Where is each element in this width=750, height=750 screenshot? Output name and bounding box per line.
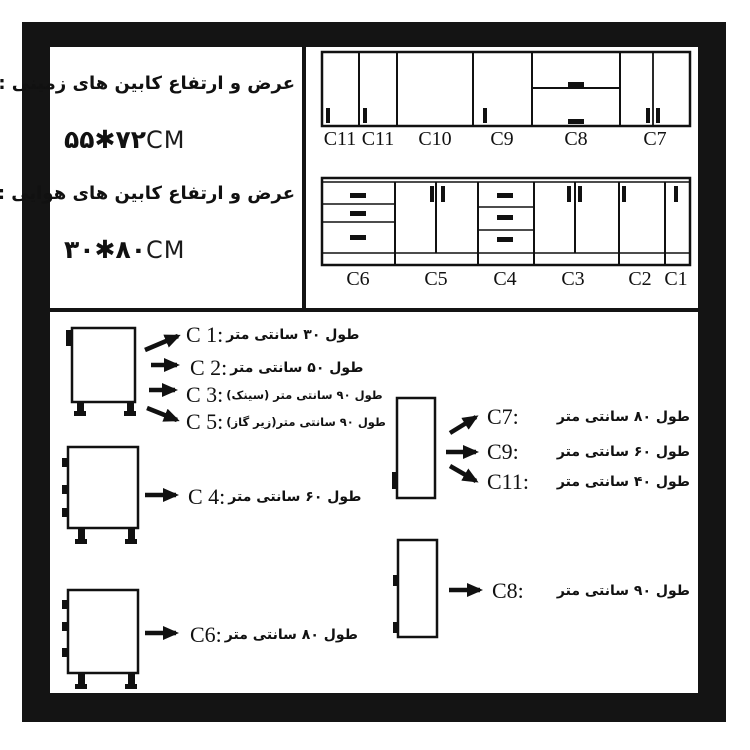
legend-row-c9: C9: طول ۶۰ سانتی متر — [487, 439, 690, 465]
legend-drawing-wall-cabinet-90 — [393, 540, 480, 637]
cabinet-length: طول ۸۰ سانتی متر — [225, 626, 358, 644]
legend-row-c6: C6: طول ۸۰ سانتی متر — [190, 622, 358, 648]
cabinet-code: C 2: — [190, 355, 227, 381]
floor-size-value: ۵۵✱۷۲ — [64, 125, 146, 154]
cabinet-code: C 3: — [186, 382, 223, 408]
cabinet-code: C9: — [487, 439, 519, 465]
floor-size-unit: CM — [146, 126, 185, 154]
cabinet-length: طول ۶۰ سانتی متر — [228, 488, 361, 506]
legend-drawing-single-door-cabinet — [66, 328, 178, 420]
elevation-panel: C11 C11 C10 C9 C8 C7 C6 C5 C4 C3 C2 C1 — [306, 47, 698, 308]
wall-cabinet-label: C11 — [362, 128, 395, 150]
wall-size-unit: CM — [146, 236, 185, 264]
cabinet-code: C11: — [487, 469, 529, 495]
cabinet-length: طول ۴۰ سانتی متر — [557, 473, 690, 491]
wall-cabinets-title: عرض و ارتفاع کابین های هوایی : — [50, 181, 302, 207]
floor-cabinets-title: عرض و ارتفاع کابین های زمینی : — [50, 71, 302, 97]
floor-cabinets-size: ۵۵✱۷۲CM — [64, 125, 185, 155]
wall-cabinets-size: ۳۰✱۸۰CM — [64, 235, 185, 265]
cabinet-code: C 1: — [186, 322, 223, 348]
legend-row-c3: C 3: طول ۹۰ سانتی متر (سینک) — [186, 382, 383, 408]
wall-cabinet-label: C11 — [324, 128, 357, 150]
base-cabinet-label: C3 — [561, 268, 584, 290]
legend-panel: C 1: طول ۳۰ سانتی متر C 2: طول ۵۰ سانتی … — [50, 312, 698, 693]
cabinet-length: طول ۹۰ سانتی متر — [557, 582, 690, 600]
base-cabinet-label: C2 — [628, 268, 651, 290]
cabinet-spec-sheet: عرض و ارتفاع کابین های زمینی : ۵۵✱۷۲CM ع… — [0, 0, 750, 750]
legend-row-c7: C7: طول ۸۰ سانتی متر — [487, 404, 690, 430]
cabinet-code: C 4: — [188, 484, 225, 510]
wall-cabinet-label: C9 — [490, 128, 513, 150]
legend-drawing-wall-cabinet — [392, 398, 476, 498]
legend-row-c2: C 2: طول ۵۰ سانتی متر — [190, 355, 363, 381]
cabinet-code: C6: — [190, 622, 222, 648]
cabinet-length: طول ۶۰ سانتی متر — [557, 443, 690, 461]
cabinet-length: طول ۳۰ سانتی متر — [226, 326, 359, 344]
legend-drawing-drawer-cabinet-80 — [62, 590, 176, 689]
legend-drawing — [50, 312, 698, 693]
base-cabinet-label: C6 — [346, 268, 369, 290]
cabinet-code: C 5: — [186, 409, 223, 435]
cabinet-length: طول ۹۰ سانتی متر(زیر گاز) — [226, 413, 386, 431]
cabinet-length: طول ۹۰ سانتی متر (سینک) — [226, 386, 382, 404]
wall-cabinet-label: C7 — [643, 128, 666, 150]
cabinet-code: C7: — [487, 404, 519, 430]
legend-row-c5: C 5: طول ۹۰ سانتی متر(زیر گاز) — [186, 409, 386, 435]
cabinet-length: طول ۸۰ سانتی متر — [557, 408, 690, 426]
cabinet-code: C8: — [492, 578, 524, 604]
legend-drawing-drawer-cabinet-60 — [62, 447, 176, 544]
wall-cabinet-label: C10 — [418, 128, 451, 150]
legend-row-c11: C11: طول ۴۰ سانتی متر — [487, 469, 690, 495]
legend-row-c1: C 1: طول ۳۰ سانتی متر — [186, 322, 359, 348]
legend-row-c4: C 4: طول ۶۰ سانتی متر — [188, 484, 361, 510]
legend-row-c8: C8: طول ۹۰ سانتی متر — [492, 578, 690, 604]
wall-size-value: ۳۰✱۸۰ — [64, 235, 146, 264]
wall-cabinet-label: C8 — [564, 128, 587, 150]
wall-cabinet-row-drawing — [322, 52, 690, 126]
base-cabinet-label: C5 — [424, 268, 447, 290]
specs-panel: عرض و ارتفاع کابین های زمینی : ۵۵✱۷۲CM ع… — [50, 47, 302, 308]
base-cabinet-label: C1 — [664, 268, 687, 290]
base-cabinet-row-drawing — [322, 178, 690, 265]
base-cabinet-label: C4 — [493, 268, 516, 290]
cabinet-length: طول ۵۰ سانتی متر — [230, 359, 363, 377]
